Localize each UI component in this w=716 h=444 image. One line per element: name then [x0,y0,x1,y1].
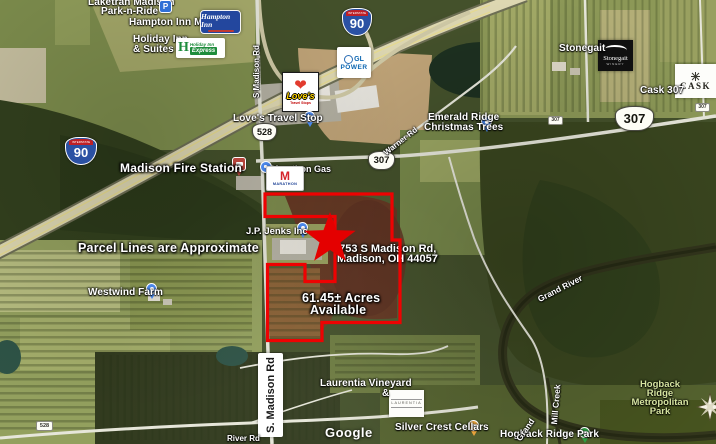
loves-name-text: Love's [286,92,314,101]
road-label-river-rd: River Rd [227,434,260,443]
compass-rose-icon [696,392,716,422]
poi-label-westwind-farm: Westwind Farm [88,287,163,298]
route-307-small-marker: 307 [695,103,710,112]
route-528-small-marker: 528 [36,421,53,431]
poi-label-loves-travel-stop: Love's Travel Stop [233,113,323,124]
hampton-logo-text: Hampton Inn [201,13,240,29]
stonegait-sub-text: WINERY [607,63,625,67]
marathon-name-text: MARATHON [273,182,297,186]
route-307-shield-right: 307 [615,106,654,131]
tree-burst-icon [691,72,700,81]
hampton-inn-logo[interactable]: Hampton Inn [200,10,241,34]
poi-label-jenks: J.P. Jenks Inc [246,226,308,237]
parking-p-glyph: P [163,2,168,11]
road-sign-s-madison-rd: S. Madison Rd [258,353,283,437]
satellite-map: Laketran Madison P Park-n-Ride Hampton I… [0,0,716,444]
road-sign-text: S. Madison Rd [265,357,277,433]
poi-label-stonegait: Stonegait [559,43,605,54]
address-line2: Madison, OH 44057 [337,253,438,265]
cask-name-text: CASK [680,82,711,91]
park-label-hogback-metro: Hogback Ridge Metropolitan Park [628,380,692,416]
holiday-inn-express-logo[interactable]: H Holiday Inn Express [176,38,225,58]
gl-power-logo[interactable]: GL POWER [337,47,371,78]
poi-label-silver-crest: Silver Crest Cellars [395,422,489,433]
interstate-90-number: 90 [66,145,96,160]
parcel-note-label: Parcel Lines are Approximate [78,241,259,255]
loves-sub-text: Travel Stops [290,101,311,105]
horse-icon [604,45,628,54]
marathon-m-glyph: M [280,171,290,182]
laurentia-name-text: LAURENTIA [391,399,421,408]
parking-icon[interactable]: P [159,0,172,13]
route-528-shield: 528 [252,123,277,141]
road-label-s-madison-small: S Madison Rd [252,45,261,98]
acreage-line2: Available [310,303,366,317]
gl-power-text: POWER [340,64,367,71]
laurentia-logo[interactable]: LAURENTIA [389,390,424,417]
fire-station-label: Madison Fire Station [120,161,242,175]
poi-label-laurentia-line2: & [382,388,389,399]
globe-icon [344,55,353,64]
poi-label-laurentia-line1: Laurentia Vineyard [320,378,412,389]
marathon-logo[interactable]: M MARATHON [266,166,304,191]
holiday-express-text: Express [190,47,217,55]
gl-initials-text: GL [354,56,364,63]
hampton-red-line [208,30,234,32]
interstate-90-number: 90 [343,16,371,31]
loves-logo[interactable]: ❤ Love's Travel Stops [282,72,319,112]
poi-label-cask-307: Cask 307 [640,85,684,96]
google-watermark: Google [325,425,373,440]
poi-label-emerald-ridge-line2: Christmas Trees [424,122,503,133]
stonegait-name-text: Stonegait [603,55,628,62]
poi-label-laketran-line2: Park-n-Ride [101,6,158,17]
park-label-line: Park [628,407,692,416]
holiday-h-glyph: H [178,41,189,55]
route-307-small-marker: 307 [548,116,563,125]
holiday-name-text: Holiday Inn [190,42,214,47]
